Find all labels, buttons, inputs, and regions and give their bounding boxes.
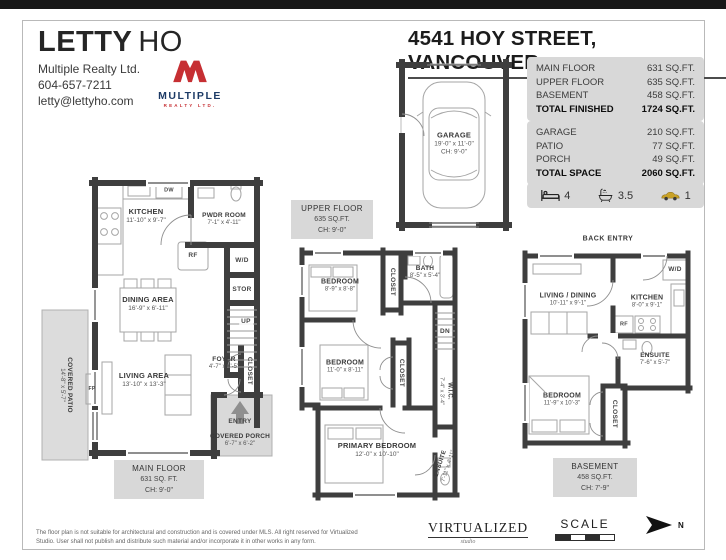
agent-name: LETTYHO [38, 26, 183, 59]
closet-label: CLOSET [397, 359, 405, 387]
table-row: BASEMENT458 SQ.FT. [536, 89, 695, 103]
beds-stat: 4 [540, 189, 570, 202]
basement-ensuite-label: ENSUITE7'-6" x 5'-7" [640, 352, 670, 368]
brokerage-name: Multiple Realty Ltd. [38, 62, 140, 76]
washer-dryer-label: W/D [235, 257, 249, 265]
entry-label: ENTRY [228, 418, 251, 426]
closet-label: CLOSET [610, 400, 618, 428]
north-arrow: N [644, 514, 684, 536]
table-row-total: TOTAL SPACE2060 SQ.FT. [536, 167, 695, 181]
fridge-label: RF [188, 252, 197, 260]
closet-label: CLOSET [245, 357, 253, 385]
powder-room-label: PWDR ROOM7'-1" x 4'-11" [202, 212, 246, 228]
bed-icon [540, 189, 560, 202]
bedroom1-label: BEDROOM8'-9" x 8'-8" [321, 278, 359, 295]
virtualized-studio-logo: VIRTUALIZED studio [428, 519, 508, 545]
primary-bedroom-label: PRIMARY BEDROOM12'-0" x 10'-10" [338, 441, 416, 459]
north-arrow-icon [644, 514, 676, 536]
baths-count: 3.5 [618, 190, 633, 202]
covered-patio-label: COVERED PATIO14'-8" x 5'-7" [57, 357, 73, 412]
agent-email: letty@lettyho.com [38, 94, 134, 108]
basement-bedroom-label: BEDROOM11'-9" x 10'-3" [543, 392, 581, 409]
living-dining-label: LIVING / DINING10'-11" x 9'-1" [540, 292, 597, 309]
main-floor-plan: KITCHEN11'-10" x 9'-7" PWDR ROOM7'-1" x … [28, 170, 278, 492]
table-row: UPPER FLOOR635 SQ.FT. [536, 76, 695, 90]
bedroom2-label: BEDROOM11'-0" x 8'-11" [326, 359, 364, 376]
parking-count: 1 [685, 190, 691, 202]
property-stats: 4 3.5 1 [527, 183, 704, 208]
agent-phone: 604-657-7211 [38, 78, 112, 92]
bath-icon [597, 188, 614, 203]
logo-name: MULTIPLE [148, 90, 232, 102]
agent-last-name: HO [138, 26, 183, 58]
living-area-label: LIVING AREA13'-10" x 13'-3" [119, 371, 169, 389]
table-row: PATIO77 SQ.FT. [536, 140, 695, 154]
closet-label: CLOSET [388, 268, 396, 296]
fireplace-label: FP [89, 386, 96, 393]
back-entry-label: BACK ENTRY [583, 234, 634, 243]
scale-indicator: SCALE [552, 517, 618, 541]
upper-floor-plan: UPPER FLOOR 635 SQ.FT. CH: 9'-0" BEDROOM… [285, 195, 475, 527]
floorplan-sheet: LETTYHO Multiple Realty Ltd. 604-657-721… [0, 0, 726, 560]
table-row: GARAGE210 SQ.FT. [536, 126, 695, 140]
agent-first-name: LETTY [38, 26, 132, 58]
kitchen-label: KITCHEN11'-10" x 9'-7" [126, 207, 166, 225]
beds-count: 4 [564, 190, 570, 202]
logo-m-icon [167, 56, 213, 84]
parking-stat: 1 [660, 190, 691, 202]
finished-area-table: MAIN FLOOR631 SQ.FT. UPPER FLOOR635 SQ.F… [527, 57, 704, 121]
brokerage-logo: MULTIPLE REALTY LTD. [148, 56, 232, 108]
stairs-down-label: DN [438, 328, 452, 336]
garage-room-label: GARAGE 19'-0" x 11'-0" CH: 9'-0" [432, 131, 476, 158]
car-icon [660, 190, 681, 201]
basement-plan: BACK ENTRY LIVING / DINING10'-11" x 9'-1… [505, 228, 705, 520]
north-letter: N [678, 521, 684, 530]
stairs-up-label: UP [239, 318, 253, 326]
dishwasher-label: DW [164, 187, 174, 194]
logo-subtitle: REALTY LTD. [148, 103, 232, 108]
wic-label: W.I.C.7'-4" x 3'-4" [438, 377, 453, 405]
main-floor-plan-label: MAIN FLOOR 631 SQ. FT. CH: 9'-0" [114, 460, 204, 499]
fridge-label: RF [620, 321, 628, 328]
upper-floor-plan-label: UPPER FLOOR 635 SQ.FT. CH: 9'-0" [291, 200, 373, 239]
foyer-label: FOYER4'-7" x 4'-5" [209, 356, 239, 372]
top-black-bar [0, 0, 726, 9]
washer-dryer-label: W/D [666, 266, 684, 274]
scale-bar [555, 534, 615, 541]
basement-kitchen-label: KITCHEN8'-0" x 9'-1" [631, 294, 664, 311]
bath-label: BATH8'-5" x 5'-4" [410, 265, 440, 281]
basement-plan-label: BASEMENT 458 SQ.FT. CH: 7'-9" [553, 458, 637, 497]
scale-label: SCALE [552, 517, 618, 531]
storage-label: STOR [232, 286, 251, 294]
table-row: PORCH49 SQ.FT. [536, 153, 695, 167]
baths-stat: 3.5 [597, 188, 633, 203]
dining-area-label: DINING AREA16'-9" x 6'-11" [122, 295, 174, 313]
table-row-total: TOTAL FINISHED1724 SQ.FT. [536, 103, 695, 117]
table-row: MAIN FLOOR631 SQ.FT. [536, 62, 695, 76]
space-area-table: GARAGE210 SQ.FT. PATIO77 SQ.FT. PORCH49 … [527, 121, 704, 185]
covered-porch-label: COVERED PORCH6'-7" x 6'-2" [210, 433, 270, 449]
disclaimer-text: The floor plan is not suitable for archi… [36, 529, 446, 548]
